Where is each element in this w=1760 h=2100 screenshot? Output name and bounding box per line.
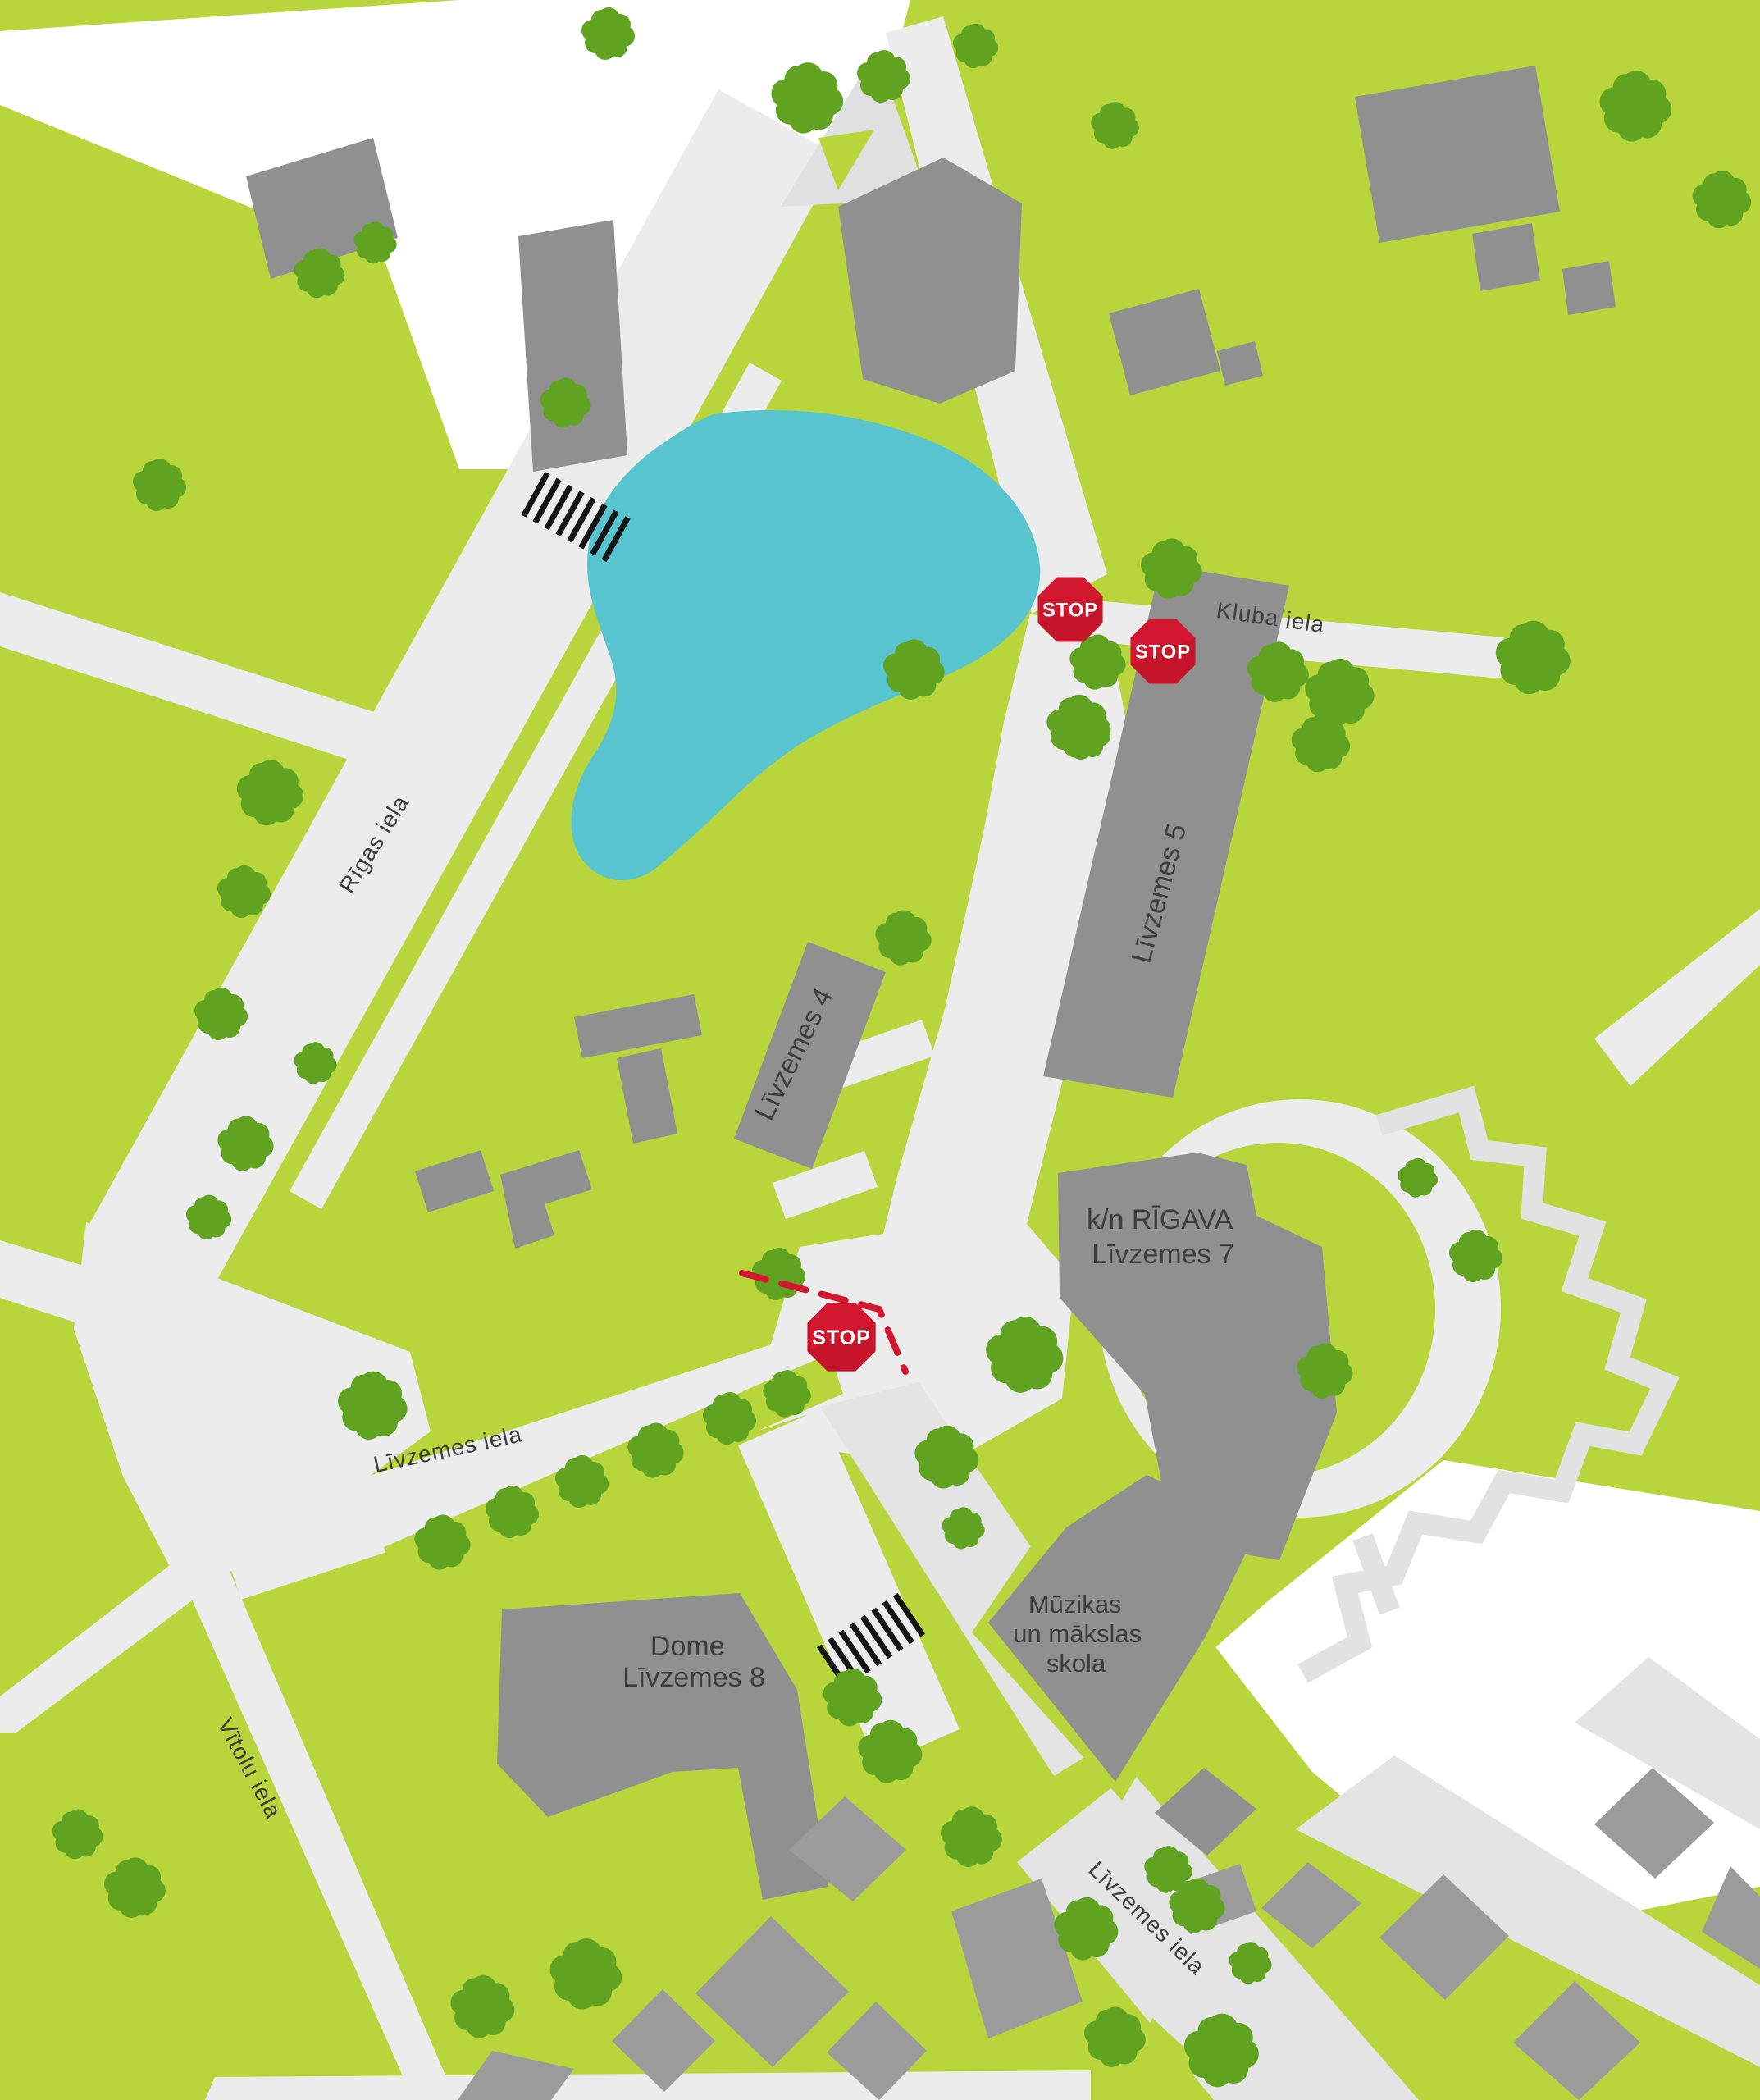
town-map: STOP STOP STOP Rīgas iela Kluba iela Līv… (0, 0, 1760, 2100)
label-school-line1: Mūzikas (1028, 1590, 1122, 1618)
label-rigava-line2: Līvzemes 7 (1092, 1239, 1234, 1270)
label-dome-line2: Līvzemes 8 (622, 1662, 765, 1693)
stop-sign-3-label: STOP (812, 1326, 871, 1349)
label-rigava-line1: k/n RĪGAVA (1087, 1204, 1233, 1235)
stop-sign-3: STOP (807, 1303, 875, 1371)
label-school-line2: un mākslas (1013, 1619, 1142, 1648)
building-northeast-large (1355, 66, 1560, 243)
building-north-center (518, 220, 627, 472)
building-fork (838, 157, 1022, 404)
building-northeast-small-1 (1472, 223, 1540, 291)
stop-sign-1-label: STOP (1042, 600, 1098, 622)
label-dome-line1: Dome (650, 1631, 725, 1662)
map-canvas: STOP STOP STOP Rīgas iela Kluba iela Līv… (0, 0, 1760, 2100)
label-school-line3: skola (1046, 1649, 1106, 1678)
stop-sign-2: STOP (1130, 619, 1195, 683)
building-northeast-small-2 (1562, 261, 1616, 315)
stop-sign-1: STOP (1037, 577, 1102, 641)
stop-sign-2-label: STOP (1135, 641, 1191, 664)
